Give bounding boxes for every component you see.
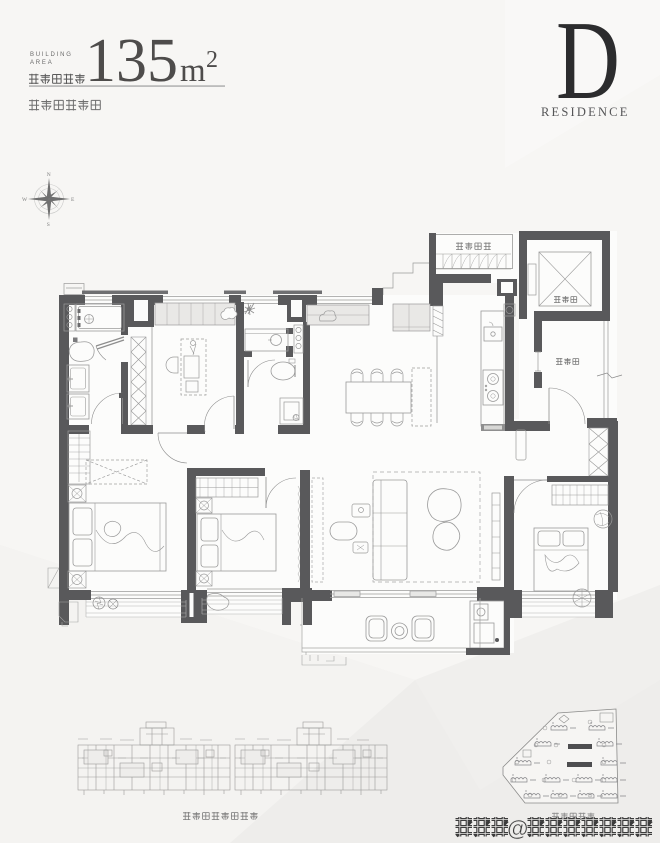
svg-text:S: S [47, 222, 50, 228]
svg-text:AREA: AREA [30, 60, 54, 66]
svg-text:@: @ [507, 816, 528, 841]
svg-text:BUILDING: BUILDING [30, 52, 73, 58]
svg-text:RESIDENCE: RESIDENCE [541, 105, 630, 119]
svg-text:m: m [180, 53, 206, 89]
svg-text:2: 2 [206, 47, 218, 73]
svg-text:W: W [22, 197, 28, 203]
svg-text:135: 135 [85, 27, 178, 95]
svg-text:N: N [47, 172, 51, 178]
